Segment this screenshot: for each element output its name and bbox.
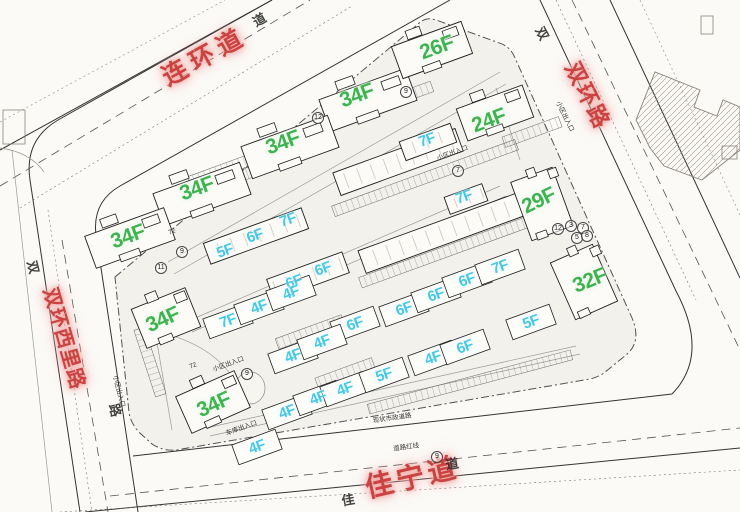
floor-label-6f: 6F — [393, 298, 414, 320]
floor-label-26f: 26F — [417, 31, 458, 65]
floor-label-34f: 34F — [263, 126, 304, 160]
road-name-char: 佳 — [340, 489, 356, 510]
floor-label-6f: 6F — [454, 336, 475, 358]
building-number-badge: 9 — [431, 451, 443, 463]
building-number-badge: 7 — [452, 165, 464, 177]
floor-label-4f: 4F — [246, 436, 267, 458]
road-name-char: 双 — [23, 258, 45, 275]
entrance-annotation: 现状市政道路 — [372, 409, 412, 424]
building-number-badge: 11 — [155, 262, 167, 274]
floor-label-6f: 6F — [344, 313, 365, 335]
road-name-char: 道 — [249, 8, 270, 31]
floor-label-24f: 24F — [469, 104, 510, 138]
floor-label-34f: 34F — [142, 302, 183, 338]
floor-label-6f: 6F — [425, 284, 446, 306]
building-number-badge: 9 — [400, 86, 412, 98]
floor-label-34f: 34F — [193, 387, 234, 423]
road-name-char: 双 — [532, 23, 555, 43]
building-number-badge: 12 — [552, 223, 564, 235]
road-label-left: 双环西里路 — [38, 284, 95, 393]
entrance-annotation: 道路红线 — [392, 439, 419, 453]
floor-label-7f: 7F — [453, 186, 474, 208]
floor-label-7f: 7F — [277, 209, 298, 231]
building-number-badge: 3 — [565, 220, 577, 232]
floor-label-7f: 7F — [217, 310, 238, 332]
floor-label-5f: 5F — [373, 364, 394, 386]
building-number-badge: 12 — [312, 112, 324, 124]
floor-label-7f: 7F — [489, 256, 510, 278]
road-name-char: 道 — [444, 453, 460, 474]
entrance-annotation: 小区出入口 — [435, 142, 469, 163]
floor-label-34f: 34F — [177, 172, 218, 206]
site-plan-canvas: 连环道 双环路 双环西里路 佳宁道 34F26F24F34F34F34F34F3… — [0, 0, 740, 512]
building-number-badge: 9 — [241, 368, 253, 380]
floor-label-34f: 34F — [337, 79, 378, 113]
floor-label-29f: 29F — [518, 183, 560, 220]
building-number-badge: 9 — [176, 246, 188, 258]
floor-label-34f: 34F — [108, 220, 149, 254]
road-label-top: 连环道 — [155, 17, 254, 94]
floor-label-4f: 4F — [422, 347, 443, 369]
entrance-annotation: 72 — [167, 227, 176, 236]
floor-label-5f: 5F — [520, 311, 541, 333]
labels-layer: 连环道 双环路 双环西里路 佳宁道 34F26F24F34F34F34F34F3… — [0, 0, 740, 512]
floor-label-4f: 4F — [307, 387, 328, 409]
entrance-annotation: 车库出入口 — [224, 417, 258, 438]
building-number-badge: 8 — [581, 230, 593, 242]
entrance-annotation: 小区出入口 — [211, 353, 245, 374]
floor-label-4f: 4F — [248, 296, 269, 318]
floor-label-4f: 4F — [282, 345, 303, 367]
floor-label-7f: 7F — [416, 129, 437, 151]
floor-label-6f: 6F — [244, 225, 265, 247]
floor-label-6f: 6F — [456, 269, 477, 291]
floor-label-4f: 4F — [276, 401, 297, 423]
floor-label-5f: 5F — [214, 240, 235, 262]
floor-label-32f: 32F — [569, 263, 610, 298]
floor-label-4f: 4F — [311, 331, 332, 353]
entrance-annotation: 72 — [188, 361, 197, 370]
entrance-annotation: 小区出入口 — [554, 99, 577, 133]
floor-label-6f: 6F — [312, 258, 333, 280]
floor-label-4f: 4F — [334, 378, 355, 400]
